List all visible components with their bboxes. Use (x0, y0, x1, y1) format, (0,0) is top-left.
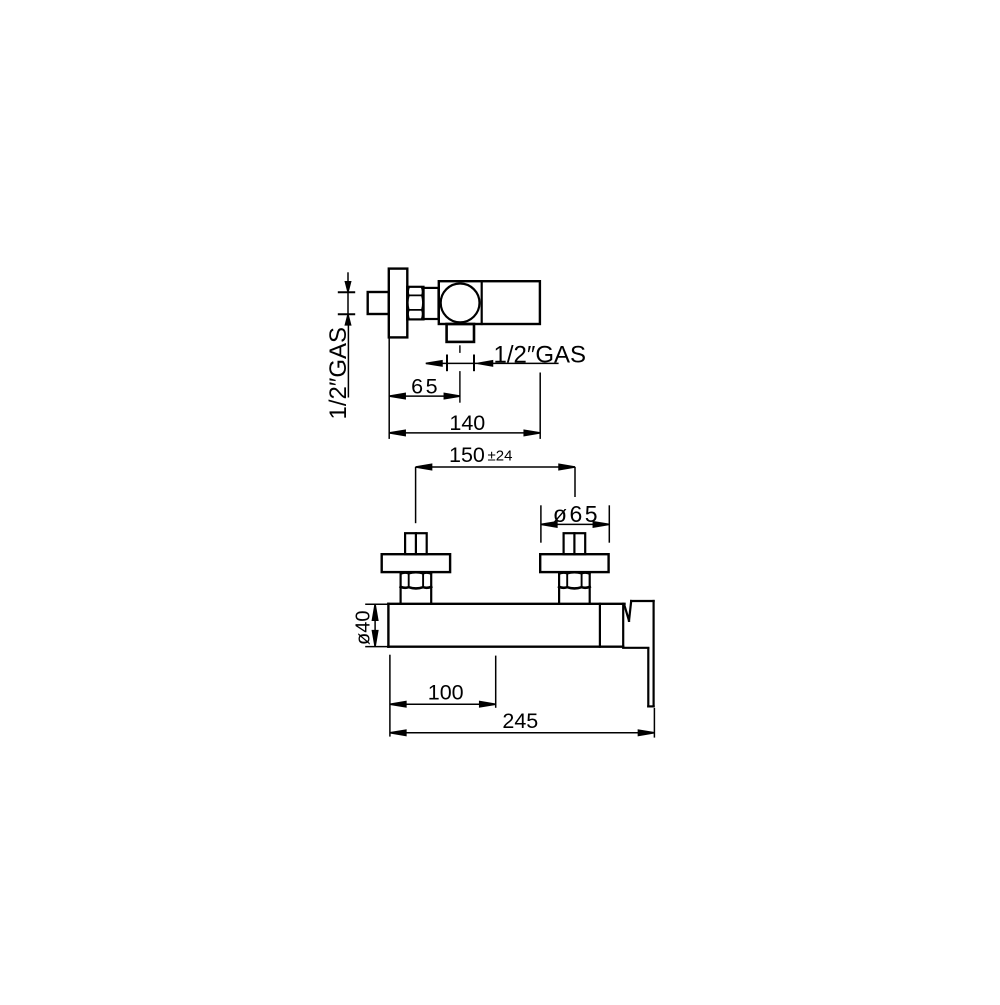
svg-text:1/2″GAS: 1/2″GAS (325, 327, 352, 420)
svg-text:100: 100 (428, 681, 464, 705)
svg-text:150: 150 (449, 443, 485, 467)
svg-text:±24: ±24 (488, 448, 513, 465)
svg-text:ø40: ø40 (353, 611, 375, 645)
svg-text:ø65: ø65 (553, 501, 600, 527)
svg-text:140: 140 (449, 411, 485, 435)
svg-text:65: 65 (411, 374, 440, 398)
svg-text:1/2″GAS: 1/2″GAS (494, 342, 587, 369)
svg-text:245: 245 (502, 709, 538, 733)
